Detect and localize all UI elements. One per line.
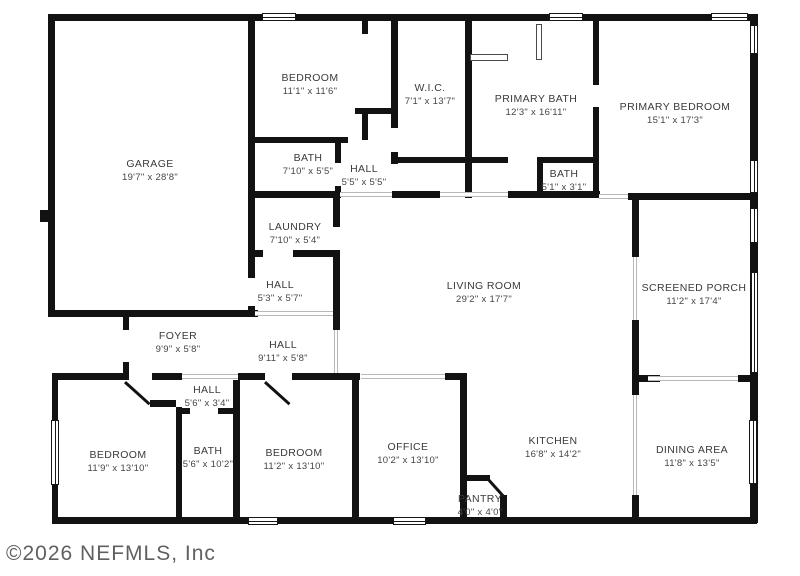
doorway-opening (633, 257, 637, 320)
room-label: LAUNDRY7'10" x 5'4" (269, 221, 322, 247)
room-label: LIVING ROOM29'2" x 17'7" (447, 280, 521, 306)
wall-segment (362, 20, 368, 34)
room-dimensions: 12'3" x 16'11" (495, 107, 577, 119)
wall-segment (48, 310, 258, 317)
room-dimensions: 9'9" x 5'8" (156, 344, 201, 356)
room-name: KITCHEN (525, 435, 581, 449)
room-dimensions: 11'2" x 17'4" (642, 296, 747, 308)
wall-segment (632, 200, 639, 257)
room-label: SCREENED PORCH11'2" x 17'4" (642, 282, 747, 308)
wall-segment (462, 475, 490, 481)
wall-segment (292, 373, 360, 380)
wall-segment (392, 191, 440, 198)
room-dimensions: 5'5" x 5'5" (342, 177, 387, 189)
wall-segment (540, 157, 593, 163)
room-name: OFFICE (377, 441, 439, 455)
window (248, 517, 278, 525)
window (750, 160, 758, 193)
room-name: BEDROOM (264, 447, 325, 461)
wall-segment (293, 250, 340, 257)
room-label: OFFICE10'2" x 13'10" (377, 441, 439, 467)
room-name: LAUNDRY (269, 221, 322, 235)
door-leaf (264, 381, 291, 405)
room-name: HALL (258, 339, 308, 353)
room-label: HALL5'3" x 5'7" (258, 279, 303, 305)
wall-segment (233, 380, 240, 520)
room-dimensions: 11'1" x 11'6" (281, 86, 338, 98)
room-dimensions: 7'10" x 5'5" (283, 166, 333, 178)
doorway-opening (361, 374, 445, 379)
room-label: W.I.C.7'1" x 13'7" (405, 82, 455, 108)
wall-segment (355, 108, 392, 114)
wall-segment (48, 14, 757, 21)
room-dimensions: 7'10" x 5'4" (269, 235, 322, 247)
room-name: FOYER (156, 330, 201, 344)
room-name: W.I.C. (405, 82, 455, 96)
room-label: BEDROOM11'9" x 13'10" (88, 449, 149, 475)
window (549, 13, 583, 21)
wall-segment (391, 14, 398, 128)
room-name: SCREENED PORCH (642, 282, 747, 296)
wall-segment (248, 306, 255, 317)
wall-segment (393, 157, 465, 163)
room-label: BATH5'6" x 10'2" (183, 445, 233, 471)
floor-plan: GARAGE19'7" x 28'8"BEDROOM11'1" x 11'6"W… (0, 0, 800, 576)
wall-segment (352, 380, 359, 520)
doorway-opening (633, 395, 637, 495)
wall-segment (40, 210, 50, 222)
window (750, 208, 758, 243)
room-dimensions: 29'2" x 17'7" (447, 294, 521, 306)
room-name: HALL (342, 163, 387, 177)
bath-fixture (536, 24, 542, 60)
room-label: GARAGE19'7" x 28'8" (122, 158, 178, 184)
doorway-opening (182, 374, 238, 379)
room-name: BATH (542, 168, 587, 182)
wall-segment (333, 253, 340, 330)
room-dimensions: 5'3" x 5'7" (258, 293, 303, 305)
wall-segment (593, 14, 599, 85)
room-label: HALL9'11" x 5'8" (258, 339, 308, 365)
room-dimensions: 19'7" x 28'8" (122, 172, 178, 184)
doorway-opening (648, 376, 738, 381)
wall-segment (48, 14, 55, 317)
wall-segment (248, 14, 255, 278)
window (749, 420, 757, 484)
wall-segment (176, 407, 182, 520)
bath-fixture (470, 54, 508, 61)
wall-segment (632, 320, 639, 395)
wall-segment (593, 107, 599, 198)
wall-segment (738, 375, 757, 382)
door-leaf (124, 381, 151, 405)
room-label: DINING AREA11'8" x 13'5" (656, 444, 728, 470)
room-name: PRIMARY BEDROOM (620, 101, 731, 115)
window (711, 13, 748, 21)
window (393, 517, 426, 525)
wall-segment (460, 373, 467, 520)
room-name: HALL (258, 279, 303, 293)
wall-segment (52, 373, 125, 380)
doorway-opening (334, 330, 338, 373)
wall-segment (500, 495, 507, 520)
room-dimensions: 9'11" x 5'8" (258, 353, 308, 365)
room-name: PRIMARY BATH (495, 93, 577, 107)
wall-segment (628, 193, 757, 200)
window (262, 13, 296, 21)
room-label: BEDROOM11'1" x 11'6" (281, 72, 338, 98)
room-label: FOYER9'9" x 5'8" (156, 330, 201, 356)
room-label: BEDROOM11'2" x 13'10" (264, 447, 325, 473)
wall-segment (465, 14, 472, 198)
wall-segment (218, 408, 233, 414)
room-name: LIVING ROOM (447, 280, 521, 294)
room-dimensions: 11'8" x 13'5" (656, 458, 728, 470)
room-dimensions: 10'2" x 13'10" (377, 455, 439, 467)
wall-segment (508, 191, 600, 198)
wall-segment (252, 191, 340, 198)
room-name: BATH (283, 152, 333, 166)
door-leaf (487, 478, 505, 498)
window (51, 420, 59, 485)
room-label: HALL5'6" x 3'4" (185, 384, 230, 410)
doorway-opening (440, 192, 508, 197)
room-name: BATH (183, 445, 233, 459)
doorway-opening (340, 192, 392, 197)
wall-segment (472, 157, 508, 163)
wall-segment (152, 373, 182, 380)
wall-segment (632, 495, 639, 520)
room-name: GARAGE (122, 158, 178, 172)
wall-segment (123, 317, 129, 330)
doorway-opening (599, 194, 628, 199)
room-dimensions: 7'1" x 13'7" (405, 96, 455, 108)
room-dimensions: 16'8" x 14'2" (525, 449, 581, 461)
wall-segment (150, 400, 176, 407)
window (750, 25, 758, 54)
room-label: HALL5'5" x 5'5" (342, 163, 387, 189)
room-label: BATH7'10" x 5'5" (283, 152, 333, 178)
room-dimensions: 15'1" x 17'3" (620, 115, 731, 127)
wall-segment (252, 137, 348, 143)
room-label: PRIMARY BEDROOM15'1" x 17'3" (620, 101, 731, 127)
wall-segment (123, 362, 129, 380)
watermark: ©2026 NEFMLS, Inc (6, 542, 216, 566)
room-dimensions: 11'9" x 13'10" (88, 463, 149, 475)
wall-segment (182, 408, 190, 414)
doorway-opening (255, 311, 333, 316)
wall-segment (238, 373, 265, 380)
room-dimensions: 5'6" x 10'2" (183, 459, 233, 471)
room-label: PRIMARY BATH12'3" x 16'11" (495, 93, 577, 119)
room-name: HALL (185, 384, 230, 398)
room-name: DINING AREA (656, 444, 728, 458)
room-name: BEDROOM (88, 449, 149, 463)
window (751, 272, 758, 373)
room-dimensions: 11'2" x 13'10" (264, 461, 325, 473)
room-label: KITCHEN16'8" x 14'2" (525, 435, 581, 461)
wall-segment (252, 250, 263, 257)
room-name: BEDROOM (281, 72, 338, 86)
